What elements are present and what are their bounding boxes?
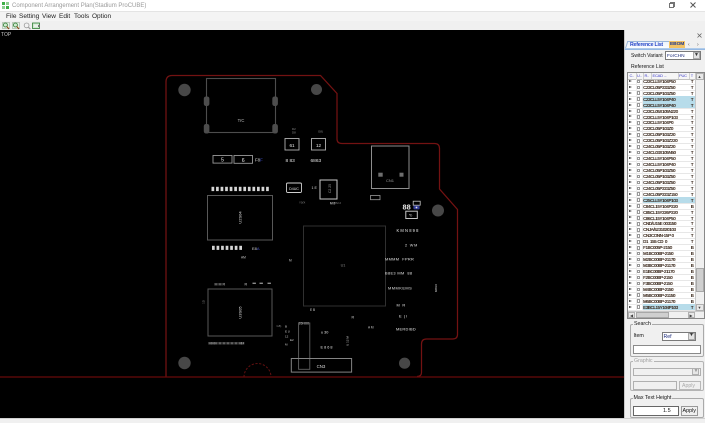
svg-text:E B: E B <box>310 308 315 312</box>
svg-text:M: M <box>285 343 288 347</box>
svg-text:2 WM: 2 WM <box>405 244 418 248</box>
svg-text:Z0HX0: Z0HX0 <box>299 322 310 326</box>
svg-text:C2 25: C2 25 <box>328 184 332 193</box>
svg-text:KMN898: KMN898 <box>397 228 420 233</box>
svg-text:E2: E2 <box>290 338 294 342</box>
svg-text:G8): G8) <box>318 130 323 134</box>
svg-text:E (I: E (I <box>399 314 407 319</box>
svg-text:A M: A M <box>368 326 374 330</box>
svg-text:CN3: CN3 <box>317 364 326 369</box>
svg-text:M M R: M M R <box>215 283 226 287</box>
svg-text:B8E3 MM 88: B8E3 MM 88 <box>385 271 412 276</box>
svg-text:12: 12 <box>285 335 289 339</box>
svg-text:U3S05: U3S05 <box>238 306 243 319</box>
svg-text:MERDIBD: MERDIBD <box>396 327 416 332</box>
svg-text:Y0/X: Y0/X <box>299 201 305 205</box>
svg-text:*b: *b <box>409 214 412 218</box>
svg-text:6863: 6863 <box>311 158 322 164</box>
svg-text:E 8 6 8: E 8 6 8 <box>321 346 333 350</box>
svg-text:D4UC: D4UC <box>289 187 299 191</box>
svg-text:U 12 M: U 12 M <box>346 336 350 346</box>
svg-text:E8A: E8A <box>252 246 260 251</box>
svg-text:M R: M R <box>397 303 407 308</box>
svg-text:MMM M M M M M MM: MMM M M M M M MM <box>209 342 245 346</box>
svg-text:12: 12 <box>316 143 322 148</box>
svg-text:B: B <box>285 325 287 329</box>
svg-text:M 2: M 2 <box>330 202 336 206</box>
svg-text:88: 88 <box>403 203 411 212</box>
svg-text:TrC: TrC <box>238 118 245 123</box>
svg-text:MMMKEMS: MMMKEMS <box>388 286 412 291</box>
svg-text:u 30: u 30 <box>321 331 328 335</box>
svg-text:6: 6 <box>242 158 245 164</box>
svg-text:M80/J: M80/J <box>434 283 438 292</box>
svg-text:MMMM FPRR: MMMM FPRR <box>385 257 414 262</box>
svg-text:AM: AM <box>241 256 246 260</box>
svg-text:G8): G8) <box>277 324 282 328</box>
svg-text:61: 61 <box>289 143 295 148</box>
svg-text:U2S04: U2S04 <box>238 211 243 224</box>
svg-text:1D: 1D <box>202 299 206 304</box>
svg-text:1 E: 1 E <box>312 186 318 190</box>
svg-text:E (I: E (I <box>285 330 290 334</box>
svg-text:5: 5 <box>221 158 224 164</box>
svg-text:M: M <box>289 259 292 263</box>
svg-text:R: R <box>245 283 248 287</box>
svg-text:D8: D8 <box>292 130 296 134</box>
svg-text:F8F: F8F <box>255 158 263 163</box>
svg-text:U1: U1 <box>341 264 346 268</box>
svg-text:CN1: CN1 <box>386 178 395 183</box>
svg-text:8 83: 8 83 <box>286 158 296 164</box>
